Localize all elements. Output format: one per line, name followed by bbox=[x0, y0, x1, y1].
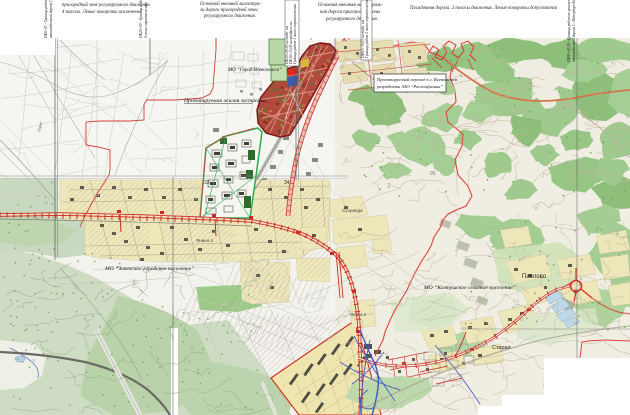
svg-text:Граница работ 2 этап строитель: Граница работ 2 этап строительства bbox=[365, 0, 369, 59]
svg-text:Проектируемый переход к г. Все: Проектируемый переход к г. Всеволожск bbox=[376, 77, 458, 82]
svg-text:МО “Колтушское сельское поселе: МО “Колтушское сельское поселение” bbox=[423, 284, 516, 291]
svg-text:ли дороги пригородной зоны: ли дороги пригородной зоны bbox=[199, 7, 258, 13]
svg-text:автомобильной дороги С.-Петерб: автомобильной дороги С.-Петербург-Колтуш… bbox=[48, 0, 53, 38]
svg-text:Суоранда: Суоранда bbox=[342, 208, 363, 213]
svg-text:Граница работ 3 этап строитель: Граница работ 3 этап строительства bbox=[293, 4, 297, 65]
svg-text:регулируемого движения.: регулируемого движения. bbox=[203, 14, 256, 19]
svg-text:4 этап строительства: 4 этап строительства bbox=[144, 2, 148, 38]
svg-text:Янино-1: Янино-1 bbox=[196, 238, 214, 243]
svg-text:95: 95 bbox=[430, 171, 436, 177]
svg-text:пригородной зоне регулируемого: пригородной зоне регулируемого движения. bbox=[62, 2, 151, 8]
svg-text:МО “Заневское городское поселе: МО “Заневское городское поселение” bbox=[104, 265, 194, 272]
svg-text:Проектируемая жилая застройка: Проектируемая жилая застройка bbox=[183, 97, 266, 104]
svg-text:Янино-2: Янино-2 bbox=[350, 312, 367, 317]
svg-text:Основной внешней магистра-: Основной внешней магистра- bbox=[200, 1, 261, 7]
svg-text:Павлово: Павлово bbox=[522, 274, 547, 280]
svg-text:ПК25+00 - Граница работ: ПК25+00 - Граница работ bbox=[139, 0, 143, 39]
svg-text:33: 33 bbox=[204, 180, 210, 186]
svg-text:МО “Город Всеволожск”: МО “Город Всеволожск” bbox=[227, 67, 282, 73]
svg-text:ПК0+47 - Граница работ по реко: ПК0+47 - Граница работ по реконструкции bbox=[44, 0, 48, 39]
svg-text:Посадочная дорога. 2 полосы дв: Посадочная дорога. 2 полосы движения. Ле… bbox=[409, 6, 558, 11]
svg-text:34: 34 bbox=[284, 180, 290, 186]
svg-text:разработки ЗАО “Росгеофизика”: разработки ЗАО “Росгеофизика” bbox=[376, 84, 443, 89]
svg-text:4 полосы. Левые повороты исклю: 4 полосы. Левые повороты исключены bbox=[62, 10, 142, 15]
svg-text:Основная внешняя магистраль-: Основная внешняя магистраль- bbox=[318, 3, 383, 8]
svg-text:Старая: Старая bbox=[492, 345, 511, 351]
svg-text:автомобильной дороги С.-Петерб: автомобильной дороги С.-Петербург-Колтуш… bbox=[571, 0, 576, 62]
